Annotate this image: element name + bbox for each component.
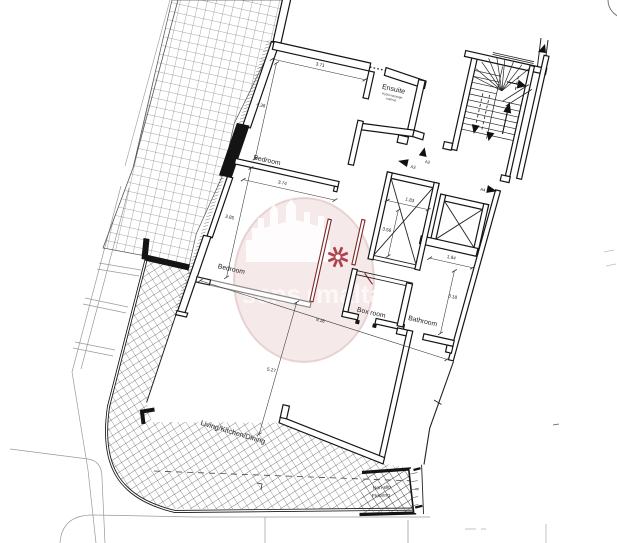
- svg-text:Flooring: Flooring: [372, 492, 391, 499]
- svg-text:up: up: [415, 487, 419, 491]
